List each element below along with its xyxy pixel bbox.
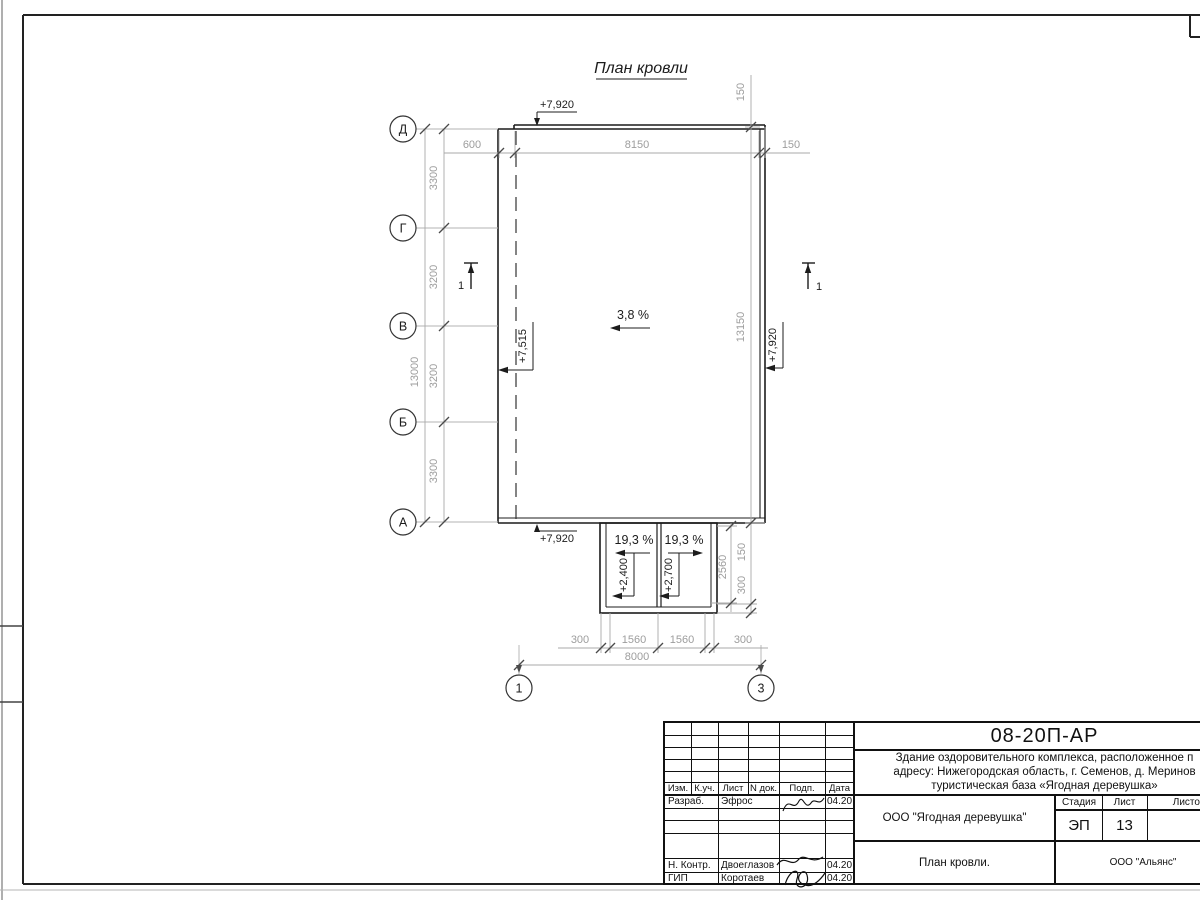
stamp-header-list: Лист bbox=[718, 782, 748, 795]
dim-bot-300b: 300 bbox=[734, 634, 752, 646]
drawing-title: План кровли bbox=[594, 60, 688, 77]
stamp-stadia-label: Стадия bbox=[1056, 795, 1102, 809]
stamp-role-nkontr: Н. Контр. bbox=[665, 858, 721, 872]
dim-left-3200b: 3200 bbox=[428, 364, 440, 388]
signature-razrab bbox=[779, 791, 827, 817]
dim-left-13000: 13000 bbox=[409, 357, 421, 388]
section-label-right: 1 bbox=[816, 281, 822, 293]
dim-right-150: 150 bbox=[735, 83, 747, 101]
dim-canopy-300: 300 bbox=[736, 576, 748, 594]
dim-top-150: 150 bbox=[782, 139, 800, 151]
stamp-role-gip: ГИП bbox=[665, 872, 721, 885]
dim-canopy-150: 150 bbox=[736, 543, 748, 561]
elev-right: +7,920 bbox=[767, 328, 779, 362]
axis-dim-arrows bbox=[516, 665, 764, 673]
dim-left-3300a: 3300 bbox=[428, 166, 440, 190]
elev-canopy-right: +2,700 bbox=[663, 558, 675, 592]
axis-row-d: Д bbox=[399, 123, 408, 137]
axis-col-3: 3 bbox=[758, 682, 765, 696]
stamp-header-kuch: К.уч. bbox=[691, 782, 718, 795]
slope-arrowheads bbox=[610, 325, 703, 556]
dim-bot-1560b: 1560 bbox=[670, 634, 694, 646]
elevation-arrowheads bbox=[498, 118, 775, 599]
stamp-stadia-value: ЭП bbox=[1056, 811, 1102, 840]
stamp-line bbox=[665, 833, 854, 834]
elev-bottom: +7,920 bbox=[540, 533, 574, 545]
elev-canopy-left: +2,400 bbox=[618, 558, 630, 592]
stamp-doc-code: 08-20П-АР bbox=[855, 723, 1200, 749]
stamp-line bbox=[665, 820, 854, 821]
signature-nkontr-gip bbox=[771, 851, 833, 891]
dim-bot-8000: 8000 bbox=[625, 651, 649, 663]
stamp-listov-label: Листов bbox=[1148, 795, 1200, 809]
stamp-line bbox=[665, 747, 854, 748]
axis-col-1: 1 bbox=[516, 682, 523, 696]
stamp-name-efros: Эфрос bbox=[718, 795, 782, 808]
stamp-line bbox=[665, 771, 854, 772]
axis-row-v: В bbox=[399, 320, 407, 334]
section-marks bbox=[464, 263, 815, 289]
dim-bot-1560a: 1560 bbox=[622, 634, 646, 646]
stamp-org: ООО "Альянс" bbox=[1056, 842, 1200, 883]
axis-lines bbox=[416, 129, 761, 674]
dim-top-600: 600 bbox=[463, 139, 481, 151]
stamp-project-line2: адресу: Нижегородская область, г. Семено… bbox=[893, 765, 1195, 779]
stamp-header-data: Дата bbox=[825, 782, 854, 795]
dim-left-3200a: 3200 bbox=[428, 265, 440, 289]
stamp-project-description: Здание оздоровительного комплекса, распо… bbox=[855, 750, 1200, 794]
elev-left: +7,515 bbox=[517, 329, 529, 363]
dim-bot-300a: 300 bbox=[571, 634, 589, 646]
slope-marks bbox=[614, 328, 699, 553]
slope-canopy-left: 19,3 % bbox=[615, 533, 654, 547]
section-label-left: 1 bbox=[458, 280, 464, 292]
stamp-project-line3: туристическая база «Ягодная деревушка» bbox=[931, 779, 1157, 793]
stamp-sheet-title: План кровли. bbox=[855, 842, 1054, 883]
stamp-header-ndok: N док. bbox=[748, 782, 779, 795]
axis-bubble-labels: Д Г В Б А 1 3 bbox=[399, 123, 765, 696]
dim-top-8150: 8150 bbox=[625, 139, 649, 151]
stamp-list-label: Лист bbox=[1102, 795, 1147, 809]
stamp-header-izm: Изм. bbox=[665, 782, 691, 795]
stamp-list-value: 13 bbox=[1102, 811, 1147, 840]
dim-canopy-2560: 2560 bbox=[717, 555, 729, 579]
title-block: Изм. К.уч. Лист N док. Подп. Дата Разраб… bbox=[663, 721, 1200, 885]
slope-canopy-right: 19,3 % bbox=[665, 533, 704, 547]
stamp-date-razrab: 04.20 bbox=[825, 795, 854, 808]
elev-top: +7,920 bbox=[540, 99, 574, 111]
stamp-role-razrab: Разраб. bbox=[665, 795, 721, 808]
stamp-org-object: ООО "Ягодная деревушка" bbox=[855, 796, 1054, 840]
stamp-line bbox=[665, 735, 854, 736]
stamp-project-line1: Здание оздоровительного комплекса, распо… bbox=[896, 751, 1194, 765]
slope-main: 3,8 % bbox=[617, 308, 649, 322]
dimension-labels: 600 8150 150 3300 3200 3200 3300 13000 1… bbox=[409, 83, 800, 663]
axis-row-g: Г bbox=[400, 222, 407, 236]
dim-left-3300b: 3300 bbox=[428, 459, 440, 483]
axis-row-a: А bbox=[399, 516, 408, 530]
stamp-line bbox=[665, 759, 854, 760]
roof-outline bbox=[498, 125, 765, 523]
axis-row-b: Б bbox=[399, 416, 407, 430]
dim-right-13150: 13150 bbox=[735, 312, 747, 343]
